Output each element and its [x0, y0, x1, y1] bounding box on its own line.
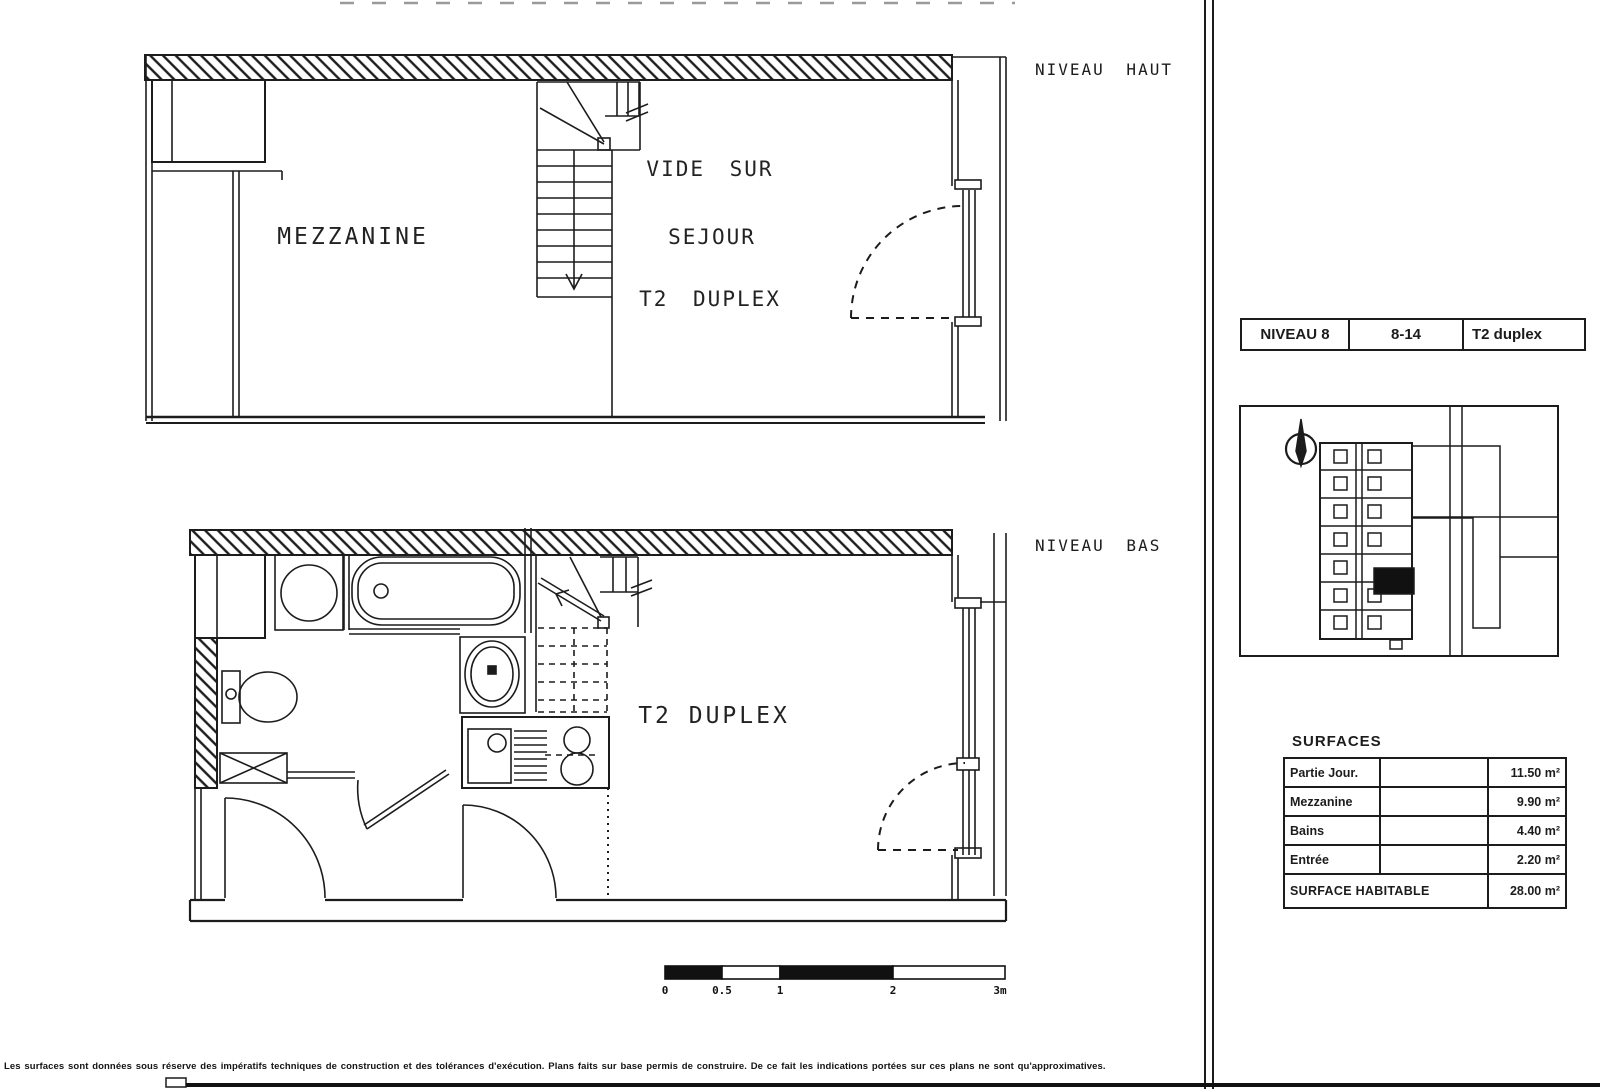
- unit-header-level: NIVEAU 8: [1240, 318, 1350, 351]
- table-total-row: SURFACE HABITABLE 28.00 m²: [1284, 874, 1566, 908]
- footer-rule: [166, 1078, 1600, 1087]
- scale-tick: 3m: [993, 984, 1006, 997]
- north-arrow-icon: [1286, 419, 1316, 466]
- surface-row-spacer: [1380, 845, 1488, 874]
- upper-stairs: [537, 82, 648, 297]
- table-row: Entrée 2.20 m²: [1284, 845, 1566, 874]
- bathroom-door: [357, 770, 449, 829]
- table-row: Bains 4.40 m²: [1284, 816, 1566, 845]
- unit-header: NIVEAU 8 8-14 T2 duplex: [1240, 318, 1586, 351]
- room-label-t2-duplex-upper: T2 DUPLEX: [639, 287, 781, 311]
- table-row: Mezzanine 9.90 m²: [1284, 787, 1566, 816]
- stove-burner: [564, 727, 590, 753]
- footer-disclaimer: Les surfaces sont données sous réserve d…: [4, 1061, 1169, 1072]
- scale-tick: 0.5: [712, 984, 732, 997]
- surface-total-label: SURFACE HABITABLE: [1284, 874, 1488, 908]
- surface-row-label: Mezzanine: [1284, 787, 1380, 816]
- room-label-t2-duplex-lower: T2 DUPLEX: [638, 703, 790, 729]
- scale-tick: 1: [777, 984, 784, 997]
- surface-row-spacer: [1380, 816, 1488, 845]
- lower-door-swing: [878, 763, 965, 850]
- surface-row-label: Entrée: [1284, 845, 1380, 874]
- stove-burner: [561, 753, 593, 785]
- washing-machine: [275, 555, 343, 630]
- bathtub: [352, 557, 520, 625]
- scale-tick: 2: [890, 984, 897, 997]
- upper-window: [952, 57, 1006, 421]
- panel-separator: [1205, 0, 1213, 1089]
- unit-header-number: 8-14: [1350, 318, 1464, 351]
- highlighted-unit: [1374, 568, 1414, 594]
- scale-bar: [665, 966, 1005, 979]
- lower-window: [952, 533, 1006, 900]
- upper-level-label: NIVEAU HAUT: [1035, 60, 1173, 79]
- kitchen-counter: [462, 717, 609, 788]
- surface-row-label: Bains: [1284, 816, 1380, 845]
- surface-row-spacer: [1380, 787, 1488, 816]
- unit-header-type: T2 duplex: [1464, 318, 1586, 351]
- crossed-fixture-box: [220, 753, 287, 783]
- surface-row-label: Partie Jour.: [1284, 758, 1380, 787]
- surface-row-value: 9.90 m²: [1488, 787, 1566, 816]
- upper-door-swing: [851, 206, 963, 318]
- surface-row-value: 4.40 m²: [1488, 816, 1566, 845]
- bottom-wall: [190, 900, 1006, 921]
- wash-basin: [460, 637, 525, 713]
- lower-plan-drawing: [190, 528, 1006, 921]
- upper-plan-drawing: [145, 55, 1006, 423]
- surface-total-value: 28.00 m²: [1488, 874, 1566, 908]
- site-key-plan: [1240, 406, 1558, 656]
- surface-row-spacer: [1380, 758, 1488, 787]
- lower-level-label: NIVEAU BAS: [1035, 536, 1161, 555]
- room-label-vide-sur: VIDE SUR: [646, 157, 773, 181]
- surfaces-title: SURFACES: [1292, 733, 1382, 750]
- floor-plan-sheet: NIVEAU HAUT NIVEAU BAS MEZZANINE VIDE SU…: [0, 0, 1600, 1089]
- surface-row-value: 2.20 m²: [1488, 845, 1566, 874]
- table-row: Partie Jour. 11.50 m²: [1284, 758, 1566, 787]
- surfaces-table: Partie Jour. 11.50 m² Mezzanine 9.90 m² …: [1283, 757, 1567, 909]
- toilet: [222, 671, 297, 723]
- room-label-mezzanine: MEZZANINE: [277, 224, 429, 250]
- surface-row-value: 11.50 m²: [1488, 758, 1566, 787]
- scale-tick: 0: [662, 984, 669, 997]
- room-label-sejour: SEJOUR: [668, 225, 756, 249]
- lower-stairs: [536, 555, 652, 712]
- plan-linework: [0, 0, 1600, 1089]
